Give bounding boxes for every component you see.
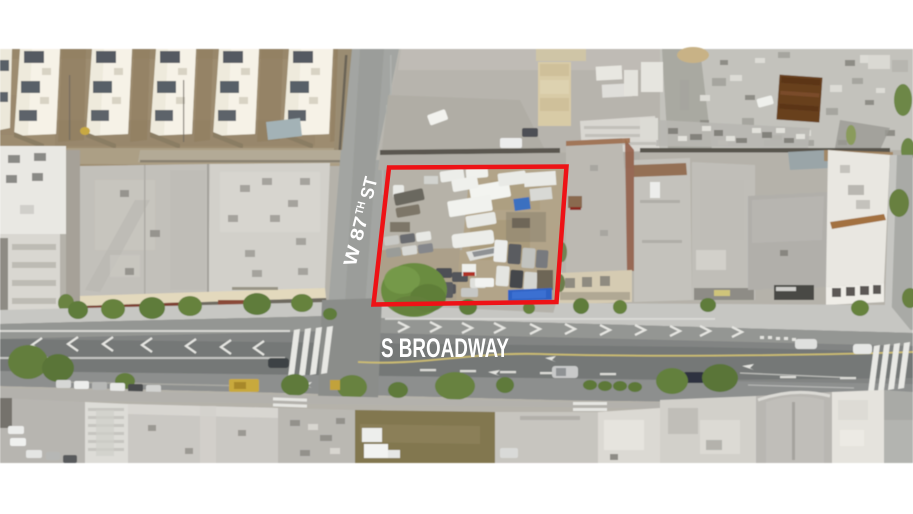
svg-text:S BROADWAY: S BROADWAY xyxy=(381,333,509,363)
